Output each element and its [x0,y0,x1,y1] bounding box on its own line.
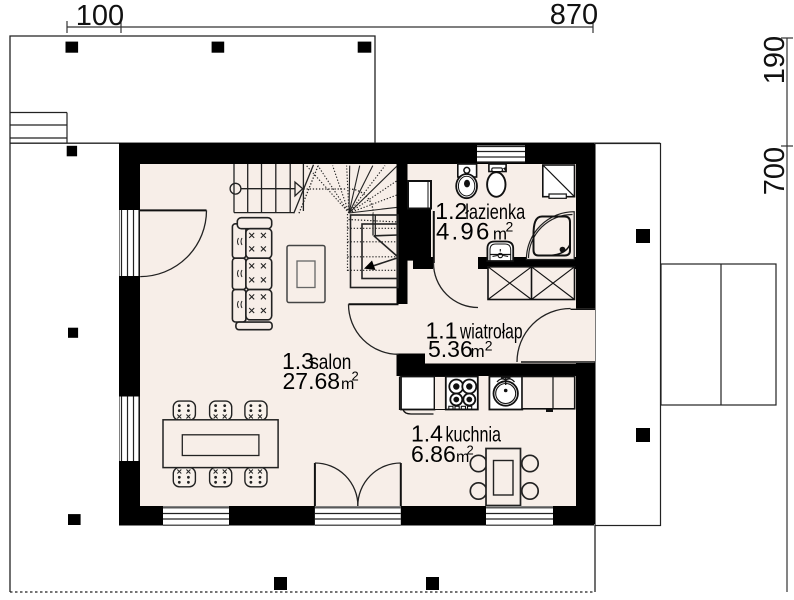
svg-text:5.36: 5.36 [428,336,473,362]
svg-text:2: 2 [352,369,359,384]
svg-text:27.68: 27.68 [283,368,341,394]
svg-text:700: 700 [759,147,791,195]
svg-text:4.96: 4.96 [436,219,492,246]
svg-text:190: 190 [759,36,791,84]
svg-text:870: 870 [550,0,598,31]
svg-text:2: 2 [485,338,493,354]
svg-text:100: 100 [76,0,124,32]
svg-text:2: 2 [467,443,474,458]
svg-text:m: m [471,342,485,361]
svg-text:2: 2 [506,219,514,235]
svg-text:6.86: 6.86 [411,441,456,467]
